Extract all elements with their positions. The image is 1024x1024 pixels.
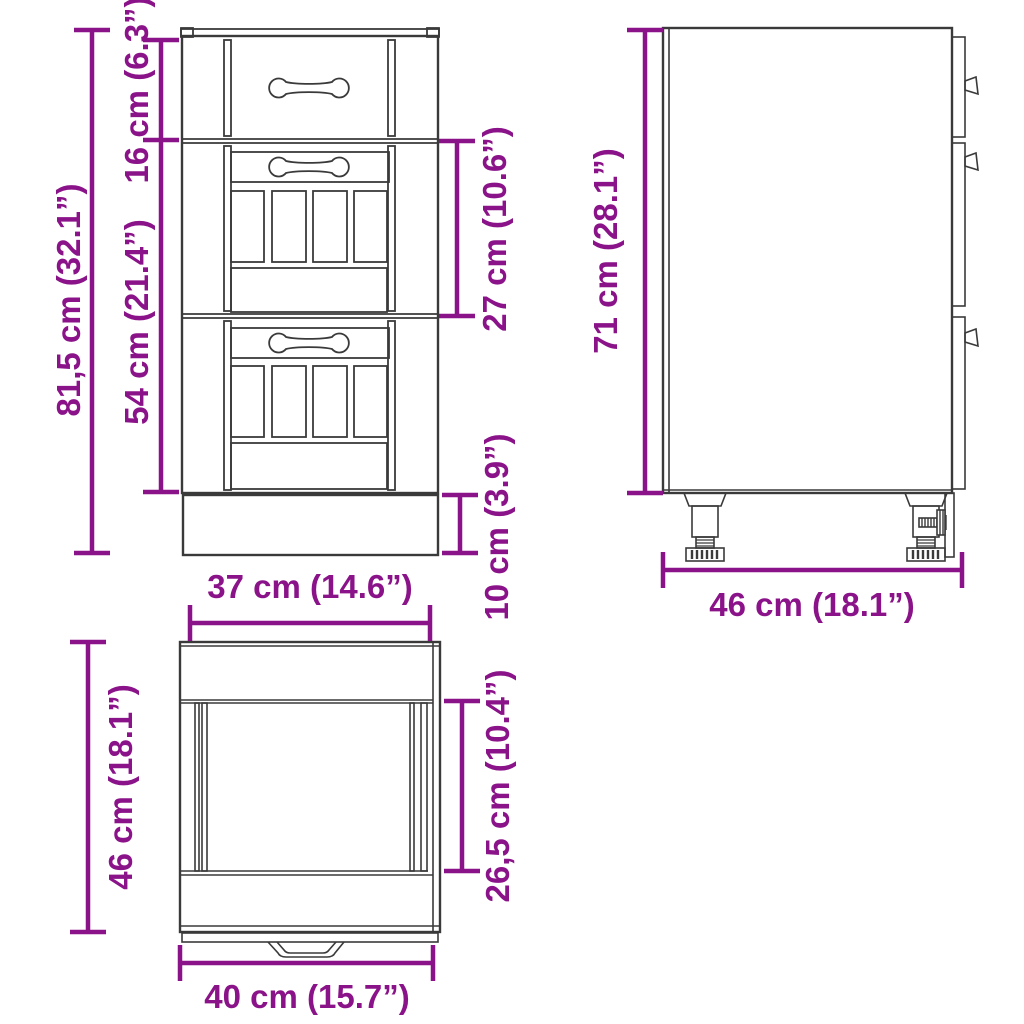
drawer2-handle-icon — [269, 158, 349, 177]
dim-line-total-height — [74, 30, 110, 553]
cabinet-dimension-diagram: 81,5 cm (32.1”) 16 cm (6.3”) 54 cm (21.4… — [0, 0, 1024, 1024]
front-plinth — [183, 495, 438, 555]
front-drawer3-detail — [231, 328, 389, 489]
bottom-front-edge — [182, 933, 438, 942]
drawer1-handle-icon — [269, 79, 349, 98]
bottom-outline — [180, 642, 440, 932]
dim-line-bottom-width — [180, 945, 433, 981]
dim-line-bottom-depth — [70, 642, 106, 932]
dimension-lines — [70, 30, 962, 981]
front-view-drawing — [181, 28, 439, 555]
side-view-drawing — [663, 28, 978, 561]
side-drawer-fronts — [952, 37, 978, 489]
dim-line-top-drawer — [143, 40, 179, 140]
bottom-rails — [195, 703, 427, 871]
side-handle3-icon — [965, 329, 978, 346]
front-drawer-gaps — [182, 139, 438, 318]
drawer3-handle-icon — [269, 334, 349, 353]
dim-line-middle-drawer — [439, 141, 475, 316]
front-carcass — [182, 36, 438, 493]
foot-adjuster-screw — [919, 510, 946, 535]
bottom-handle-icon — [268, 942, 344, 957]
bottom-view-drawing — [180, 642, 440, 957]
front-foot — [684, 493, 726, 561]
side-handle2-icon — [965, 153, 978, 170]
diagram-line-art — [0, 0, 1024, 1024]
side-handle1-icon — [965, 77, 978, 94]
rear-foot — [905, 493, 947, 561]
dim-line-plinth — [442, 495, 478, 553]
front-stiles — [224, 40, 395, 490]
dim-line-front-width — [190, 605, 430, 641]
dim-line-inner-depth — [444, 701, 480, 871]
front-drawer2-detail — [231, 152, 389, 312]
dim-line-side-height — [627, 30, 663, 493]
dim-line-lower-section — [143, 140, 179, 492]
side-panel — [663, 28, 952, 493]
